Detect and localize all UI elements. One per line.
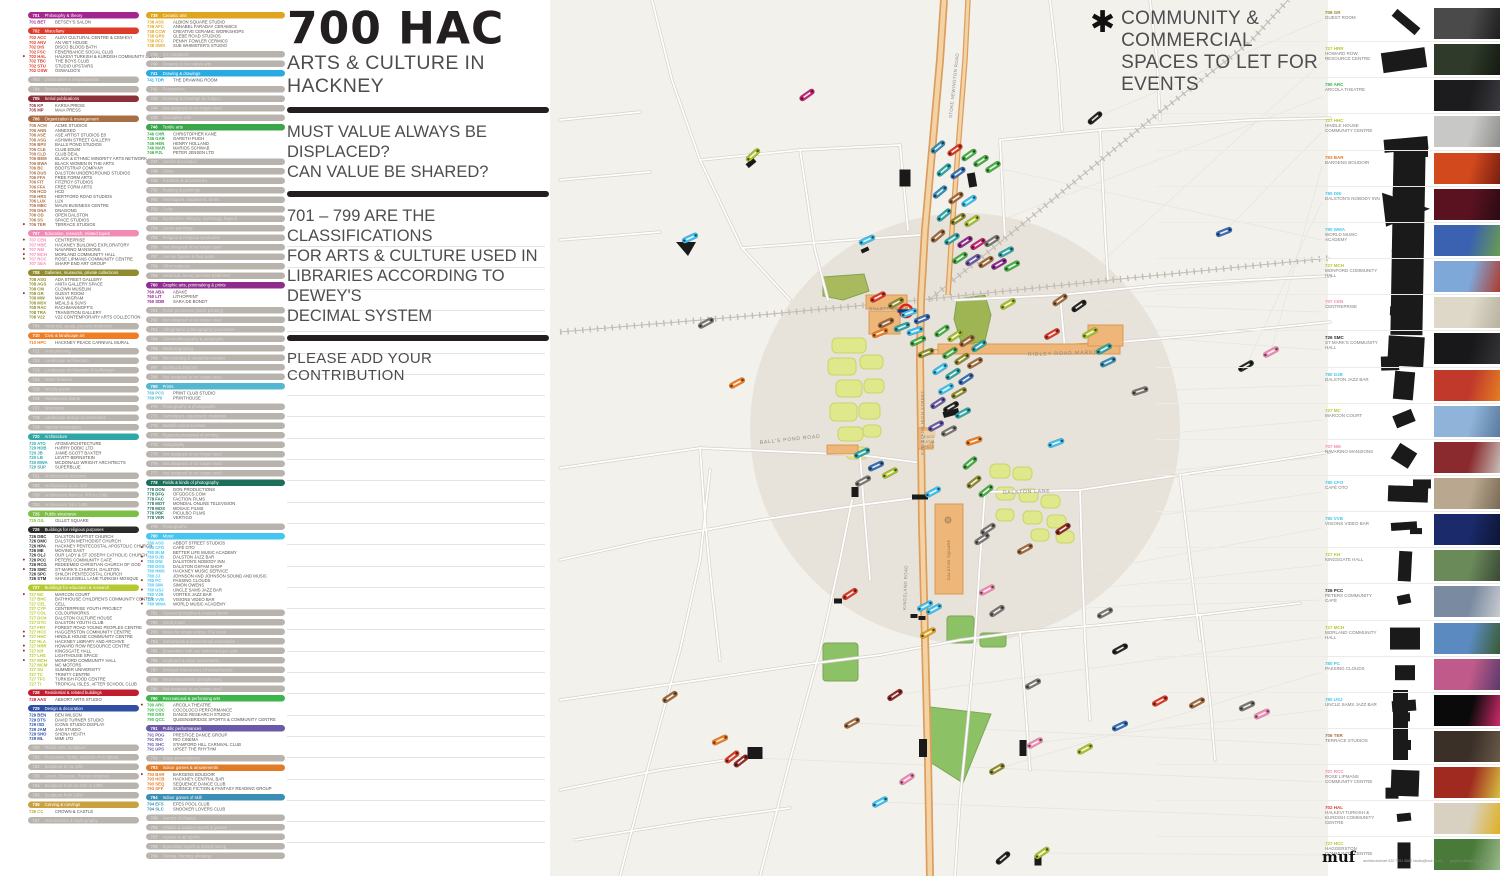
directory-column-2: 738Ceramic arts738 ASSALBION SQUARE STUD… xyxy=(146,12,285,862)
contribution-note: PLEASE ADD YOUR CONTRIBUTION xyxy=(287,350,549,384)
poster-statement: 701 – 799 ARE THE CLASSIFICATIONS FOR AR… xyxy=(287,206,549,326)
directory-section-799: 799Fishing, hunting, shooting xyxy=(146,853,285,860)
section-header: 728Residential & related buildings xyxy=(28,689,139,696)
bullet-icon: ● xyxy=(23,54,26,59)
section-header: 788Wind instruments (aerophones) xyxy=(146,676,285,683)
directory-section-754: 754Genre paintings xyxy=(146,225,285,232)
bullet-icon: ● xyxy=(23,567,26,572)
map-label: DALSTON SQUARE xyxy=(947,539,951,580)
space-code: 780 DNI xyxy=(1325,191,1380,196)
section-header: 748Glass xyxy=(146,168,285,175)
section-header: 727Buildings for education & research xyxy=(28,584,139,591)
contribution-line xyxy=(287,395,545,396)
footer-note-left: architecture/art 020 7251 5682 studio@mu… xyxy=(1363,859,1442,864)
space-name: WORLD MUSIC ACADEMY xyxy=(1325,232,1380,242)
directory-entry: 738 SWSSUE WHIMSTER'S STUDIO xyxy=(146,44,285,49)
directory-section-717: 717Structures xyxy=(28,405,139,412)
directory-section-716: 716Herbaceous plants xyxy=(28,395,139,402)
directory-section-720: 720Architecture720 ATOATOM/ARCHITECTURE7… xyxy=(28,433,139,469)
directory-section-748: 748Glass xyxy=(146,168,285,175)
directory-section-740: 740Drawing & decorative arts xyxy=(146,61,285,68)
contribution-line xyxy=(287,459,545,460)
space-row-label: 707 NMNAVARINO MANSIONS xyxy=(1325,444,1380,454)
directory-section-790: 790Recreational & performing arts●790 AR… xyxy=(146,695,285,722)
directory-section-703: 703Dictionaries & encyclopedias xyxy=(28,76,139,83)
directory-section-762: 762Not assigned or no longer used xyxy=(146,317,285,324)
directory-section-728: 728Residential & related buildings728 AA… xyxy=(28,689,139,702)
space-footprint-large xyxy=(1390,150,1425,336)
space-footprint xyxy=(1410,528,1422,534)
row-divider xyxy=(1156,403,1500,404)
bullet-icon: ● xyxy=(23,238,26,243)
section-header: 795Games of chance xyxy=(146,815,285,822)
title-block: 700 HAC ARTS & CULTURE IN HACKNEY MUST V… xyxy=(287,6,549,384)
section-header: 798Equestrian sports & animal racing xyxy=(146,843,285,850)
contribution-line xyxy=(287,523,545,524)
directory-section-718: 718Landscape design of cemeteries xyxy=(28,414,139,421)
directory-section-795: 795Games of chance xyxy=(146,815,285,822)
space-name: TERRACE STUDIOS xyxy=(1325,738,1380,743)
directory-section-742: 742Perspective xyxy=(146,86,285,93)
directory-section-778: 778Fields & kinds of photography778 DOND… xyxy=(146,479,285,520)
directory-section-777: 777Not assigned or no longer used xyxy=(146,470,285,477)
highlight-blob xyxy=(836,380,862,397)
directory-section-711: 711Area planning xyxy=(28,348,139,355)
directory-section-701: 701Philosophy & theory701 BETBETSEY'S SA… xyxy=(28,12,139,25)
directory-section-774: 774Holography xyxy=(146,441,285,448)
space-name: NAVARINO MANSIONS xyxy=(1325,449,1380,454)
space-name: DALSTON JAZZ BAR xyxy=(1325,377,1380,382)
space-name: MARCON COURT xyxy=(1325,413,1380,418)
space-name: HINDLE HOUSE COMMUNITY CENTRE xyxy=(1325,123,1380,133)
section-header: 766Mezzotinting & related processes xyxy=(146,355,285,362)
directory-section-798: 798Equestrian sports & animal racing xyxy=(146,843,285,850)
section-header: 729Design & decoration xyxy=(28,705,139,712)
directory-section-747: 747Interior decoration xyxy=(146,158,285,165)
space-footprint xyxy=(1390,628,1420,650)
row-divider xyxy=(1156,222,1500,223)
directory-section-733: 733Greek, Etruscan, Roman sculpture xyxy=(28,773,139,780)
directory-section-783: 783Music for single voices; The voice xyxy=(146,629,285,636)
space-code: 793 BAR xyxy=(1325,155,1380,160)
contribution-line xyxy=(287,842,545,843)
space-row-label: 726 SMCST MARK'S COMMUNITY HALL xyxy=(1325,335,1380,350)
space-name: ROSE LIPMANS COMMUNITY CENTRE xyxy=(1325,774,1380,784)
space-photo xyxy=(1434,333,1500,364)
directory-entry: 791 UPSUPSET THE RHYTHM xyxy=(146,747,285,752)
directory-section-746: 746Textile arts746 CHRCHRISTOPHER KANE74… xyxy=(146,124,285,156)
directory-section-794: 794Indoor games of skill794 EFSEFES POOL… xyxy=(146,794,285,811)
directory-section-725: 725Public structures725 GILGILLET SQUARE xyxy=(28,511,139,524)
directory-section-710: 710Civic & landscape art710 HPCHACKNEY P… xyxy=(28,332,139,345)
directory-entry: 794 SLCSNOOKER LOVERS CLUB xyxy=(146,807,285,812)
space-code: 780 PC xyxy=(1325,661,1380,666)
building-footprint xyxy=(834,599,842,604)
directory-section-768: 768Not assigned or no longer used xyxy=(146,374,285,381)
bullet-icon: ● xyxy=(141,587,144,592)
space-row-label: 707 RCCROSE LIPMANS COMMUNITY CENTRE xyxy=(1325,769,1380,784)
section-header: 711Area planning xyxy=(28,348,139,355)
directory-entry: 729 MLMIMI LTD xyxy=(28,737,139,742)
row-divider xyxy=(1156,583,1500,584)
space-photo xyxy=(1434,767,1500,798)
contribution-line xyxy=(287,480,545,481)
directory-section-761: 761Relief processes (block printing) xyxy=(146,307,285,314)
directory-section-745: 745Decorative arts xyxy=(146,114,285,121)
space-photo xyxy=(1434,550,1500,581)
space-row-label: 707 CENCENTREPRISE xyxy=(1325,299,1380,309)
space-row-label: 727 MCMARCON COURT xyxy=(1325,408,1380,418)
section-header: 750Painting & paintings xyxy=(146,187,285,194)
section-header: 772Metallic salt processes xyxy=(146,422,285,429)
contribution-line xyxy=(287,416,545,417)
section-header: 753Symbolism, allegory, mythology, legen… xyxy=(146,215,285,222)
highlight-blob xyxy=(864,379,884,393)
bullet-icon: ● xyxy=(23,658,26,663)
space-photo xyxy=(1434,189,1500,220)
directory-entry: 705 MPMAIA PRESS xyxy=(28,108,139,113)
directory-section-735: 735Sculpture from 1400 xyxy=(28,792,139,799)
section-header: 783Music for single voices; The voice xyxy=(146,629,285,636)
space-photo xyxy=(1434,261,1500,292)
row-divider xyxy=(1156,547,1500,548)
space-footprint-large xyxy=(1397,338,1413,350)
section-header: 738Ceramic arts xyxy=(146,12,285,19)
section-header: 763Lithographic (planographic) processes xyxy=(146,326,285,333)
directory-entry: ●780 WMAWORLD MUSIC ACADEMY xyxy=(146,602,285,607)
directory-section-712: 712Landscape architecture xyxy=(28,357,139,364)
directory-section-765: 765Metal engraving xyxy=(146,345,285,352)
directory-section-764: 764Chromolithography & serigraphy xyxy=(146,336,285,343)
directory-section-707: 707Education, research, related topics●7… xyxy=(28,230,139,266)
section-header: 745Decorative arts xyxy=(146,114,285,121)
space-row-label: 726 PCCPETERS COMMUNITY CAFÉ xyxy=(1325,588,1380,603)
directory-section-758: 758Other subjects xyxy=(146,263,285,270)
directory-section-797: 797Aquatic & air sports xyxy=(146,834,285,841)
directory-entry: 727 TITROPICAL ISLES, AFTER SCHOOL CLUB xyxy=(28,682,139,687)
space-footprint xyxy=(1392,409,1415,429)
section-header: 739Art metalwork xyxy=(146,51,285,58)
space-footprint xyxy=(1392,9,1421,35)
section-header: 714Water features xyxy=(28,376,139,383)
space-photo xyxy=(1434,659,1500,690)
space-footprint xyxy=(1381,356,1399,371)
square-icon xyxy=(945,517,951,523)
section-header: 722Architecture to ca. 300 xyxy=(28,482,139,489)
space-row-label: 790 ARCARCOLA THEATRE xyxy=(1325,82,1380,92)
section-header: 709Historical, areas, persons treatment xyxy=(28,323,139,330)
contribution-line xyxy=(287,544,545,545)
contribution-line xyxy=(287,651,545,652)
divider-bar xyxy=(287,191,549,197)
directory-section-784: 784Instruments & instrumental ensembles xyxy=(146,638,285,645)
section-header: 762Not assigned or no longer used xyxy=(146,317,285,324)
highlight-blob xyxy=(996,509,1014,521)
directory-entry: 710 HPCHACKNEY PEACE CARNIVAL MURAL xyxy=(28,340,139,345)
directory-entry: 708 V22V22 CONTEMPORARY ARTS COLLECTION xyxy=(28,315,139,320)
space-name: UNCLE SAMS JAZZ BAR xyxy=(1325,702,1380,707)
directory-section-760: 760Graphic arts, printmaking & prints760… xyxy=(146,282,285,304)
section-header: 701Philosophy & theory xyxy=(28,12,139,19)
row-divider xyxy=(1156,656,1500,657)
directory-column-1: 701Philosophy & theory701 BETBETSEY'S SA… xyxy=(28,12,139,827)
section-header: 734Sculpture from ca. 500 to 1399 xyxy=(28,782,139,789)
bullet-icon: ● xyxy=(23,222,26,227)
directory-section-734: 734Sculpture from ca. 500 to 1399 xyxy=(28,782,139,789)
directory-section-781: 781General principles & musical forms xyxy=(146,610,285,617)
row-divider xyxy=(1156,511,1500,512)
section-header: 757Human figures & their parts xyxy=(146,253,285,260)
section-header: 719Natural landscapes xyxy=(28,424,139,431)
row-divider xyxy=(1156,258,1500,259)
bullet-icon: ● xyxy=(141,602,144,607)
section-header: 733Greek, Etruscan, Roman sculpture xyxy=(28,773,139,780)
space-name: ST MARK'S COMMUNITY HALL xyxy=(1325,340,1380,350)
section-header: 732Sculpture to ca. 500 xyxy=(28,763,139,770)
space-photo xyxy=(1434,297,1500,328)
space-footprint xyxy=(1397,594,1412,606)
directory-section-729: 729Design & decoration729 BENBEN WILSON7… xyxy=(28,705,139,741)
space-photo xyxy=(1434,803,1500,834)
space-name: PETERS COMMUNITY CAFÉ xyxy=(1325,593,1380,603)
section-header: 764Chromolithography & serigraphy xyxy=(146,336,285,343)
directory-section-737: 737Numismatics & sigillography xyxy=(28,817,139,824)
section-header: 726Buildings for religious purposes xyxy=(28,526,139,533)
space-code: 727 MC xyxy=(1325,408,1380,413)
space-footprint xyxy=(1381,47,1427,73)
directory-section-776: 776Not assigned or no longer used xyxy=(146,460,285,467)
directory-section-767: 767Etching & drypoint xyxy=(146,364,285,371)
poster-question: MUST VALUE ALWAYS BE DISPLACED? CAN VALU… xyxy=(287,122,549,182)
directory-section-753: 753Symbolism, allegory, mythology, legen… xyxy=(146,215,285,222)
space-photo xyxy=(1434,116,1500,147)
directory-section-738: 738Ceramic arts738 ASSALBION SQUARE STUD… xyxy=(146,12,285,48)
section-header: 792Stage presentations xyxy=(146,755,285,762)
directory-entry: 725 GILGILLET SQUARE xyxy=(28,519,139,524)
section-header: 724Architecture from 1400 xyxy=(28,501,139,508)
section-header: 786Keyboard & other instruments xyxy=(146,657,285,664)
spaces-header: ✱ COMMUNITY & COMMERCIAL SPACES TO LET F… xyxy=(1090,8,1340,96)
building-footprint xyxy=(919,616,926,620)
directory-section-773: 773Pigment processes of printing xyxy=(146,432,285,439)
directory-section-706: 706Organization & management706 ACMACME … xyxy=(28,116,139,227)
space-row-label: 780 WMAWORLD MUSIC ACADEMY xyxy=(1325,227,1380,242)
space-photo xyxy=(1434,623,1500,654)
highlight-blob xyxy=(990,464,1010,478)
bullet-icon: ● xyxy=(23,257,26,262)
space-photo xyxy=(1434,514,1500,545)
map-label: MURAL xyxy=(921,440,936,444)
row-divider xyxy=(1156,367,1500,368)
row-divider xyxy=(1156,800,1500,801)
space-photo xyxy=(1434,586,1500,617)
section-header: 796Athletic & outdoor sports & games xyxy=(146,824,285,831)
directory-section-705: 705Serial publications705 KPKARSA PRESS7… xyxy=(28,95,139,112)
space-photo xyxy=(1434,8,1500,39)
directory-section-757: 757Human figures & their parts xyxy=(146,253,285,260)
space-row-label: 780 VVBVISIONS VIDEO BAR xyxy=(1325,516,1380,526)
section-header: 761Relief processes (block printing) xyxy=(146,307,285,314)
directory-section-792: 792Stage presentations xyxy=(146,755,285,762)
building-footprint xyxy=(852,487,859,497)
section-header: 754Genre paintings xyxy=(146,225,285,232)
space-row-label: 727 KHKINGSGATE HALL xyxy=(1325,552,1380,562)
section-header: 730Plastic arts; Sculpture xyxy=(28,744,139,751)
section-header: 704Special topics xyxy=(28,86,139,93)
highlight-blob xyxy=(1013,467,1032,480)
directory-entry: 769 PRIPRINTHOUSE xyxy=(146,396,285,401)
directory-section-766: 766Mezzotinting & related processes xyxy=(146,355,285,362)
directory-section-759: 759Historical, areas, persons treatment xyxy=(146,272,285,279)
section-header: 747Interior decoration xyxy=(146,158,285,165)
bullet-icon: ● xyxy=(141,559,144,564)
section-header: 759Historical, areas, persons treatment xyxy=(146,272,285,279)
spaces-header-text: COMMUNITY & COMMERCIAL SPACES TO LET FOR… xyxy=(1121,8,1340,96)
contribution-line xyxy=(287,800,545,801)
directory-section-723: 723Architecture from ca. 300 to 1399 xyxy=(28,492,139,499)
space-photo xyxy=(1434,406,1500,437)
section-header: 779Photographs xyxy=(146,523,285,530)
directory-section-769: 769Prints769 PCSPRINT CLUB STUDIO769 PRI… xyxy=(146,383,285,400)
bullet-icon: ● xyxy=(23,648,26,653)
divider-bar xyxy=(287,335,549,341)
section-header: 749Furniture & accessories xyxy=(146,177,285,184)
building-footprint xyxy=(748,747,763,759)
directory-section-704: 704Special topics xyxy=(28,86,139,93)
space-name: CAFÉ OTO xyxy=(1325,485,1380,490)
section-header: 718Landscape design of cemeteries xyxy=(28,414,139,421)
section-header: 791Public performances xyxy=(146,725,285,732)
space-row-label: 780 CFOCAFÉ OTO xyxy=(1325,480,1380,490)
section-header: 731Processes, forms, subjects of sculptu… xyxy=(28,754,139,761)
contribution-line xyxy=(287,736,545,737)
section-header: 789Not assigned or no longer used xyxy=(146,686,285,693)
directory-section-708: 708Galleries, museums, private collectio… xyxy=(28,269,139,319)
space-name: HOWARD ROW RESOURCE CENTRE xyxy=(1325,51,1380,61)
section-header: 799Fishing, hunting, shooting xyxy=(146,853,285,860)
directory-section-726: 726Buildings for religious purposes726 D… xyxy=(28,526,139,581)
directory-section-719: 719Natural landscapes xyxy=(28,424,139,431)
section-header: 721Architectural structure xyxy=(28,473,139,480)
highlight-blob xyxy=(863,425,881,437)
directory-section-772: 772Metallic salt processes xyxy=(146,422,285,429)
footer: muf architecture/art 020 7251 5682 studi… xyxy=(1322,850,1500,864)
section-header: 768Not assigned or no longer used xyxy=(146,374,285,381)
row-divider xyxy=(1156,836,1500,837)
directory-entry: 746 PJLPETER JENSEN LTD xyxy=(146,151,285,156)
space-photo xyxy=(1434,153,1500,184)
directory-section-780: 780Music780 ASSABBOT STREET STUDIOS●780 … xyxy=(146,533,285,607)
contribution-line xyxy=(287,715,545,716)
bullet-icon: ● xyxy=(141,772,144,777)
poster-logo: 700 HAC xyxy=(287,6,549,53)
space-photo xyxy=(1434,370,1500,401)
highlight-blob xyxy=(1023,511,1042,524)
space-name: VISIONS VIDEO BAR xyxy=(1325,521,1380,526)
section-header: 781General principles & musical forms xyxy=(146,610,285,617)
bullet-icon: ● xyxy=(23,291,26,296)
space-photo xyxy=(1434,731,1500,762)
highlight-blob xyxy=(859,403,880,419)
directory-section-793: 793Indoor games & amusements●793 BARBARG… xyxy=(146,764,285,791)
section-header: 717Structures xyxy=(28,405,139,412)
directory-section-736: 736Carving & carvings736 CCCROWN & CASTL… xyxy=(28,801,139,814)
row-divider xyxy=(1156,294,1500,295)
space-photo xyxy=(1434,225,1500,256)
section-header: 735Sculpture from 1400 xyxy=(28,792,139,799)
directory-entry: 778 VERVERTIGO xyxy=(146,516,285,521)
directory-section-709: 709Historical, areas, persons treatment xyxy=(28,323,139,330)
poster-subtitle: ARTS & CULTURE IN HACKNEY xyxy=(287,52,549,98)
section-header: 777Not assigned or no longer used xyxy=(146,470,285,477)
directory-entry: 736 CCCROWN & CASTLE xyxy=(28,809,139,814)
section-header: 741Drawing & drawings xyxy=(146,70,285,77)
space-footprint xyxy=(1386,788,1399,799)
section-header: 765Metal engraving xyxy=(146,345,285,352)
directory-section-731: 731Processes, forms, subjects of sculptu… xyxy=(28,754,139,761)
section-header: 725Public structures xyxy=(28,511,139,518)
section-header: 785Ensembles with one instrument per par… xyxy=(146,648,285,655)
section-header: 787Stringed instruments (chordophones) xyxy=(146,667,285,674)
focus-circle xyxy=(750,213,1180,643)
directory-section-752: 752Color xyxy=(146,206,285,213)
section-header: 774Holography xyxy=(146,441,285,448)
directory-entry: 741 TDRTHE DRAWING ROOM xyxy=(146,78,285,83)
directory-entry: ●706 TERTERRACE STUDIOS xyxy=(28,223,139,228)
row-divider xyxy=(1156,113,1500,114)
section-header: 760Graphic arts, printmaking & prints xyxy=(146,282,285,289)
section-header: 743Drawing & drawings by subject xyxy=(146,95,285,102)
contribution-line xyxy=(287,608,545,609)
section-header: 794Indoor games of skill xyxy=(146,794,285,801)
highlight-blob xyxy=(1031,529,1049,541)
directory-section-751: 751Techniques, equipment, forms xyxy=(146,196,285,203)
footer-note-right: graphic design by åbäke xyxy=(1450,859,1489,864)
contribution-line xyxy=(287,779,545,780)
section-header: 773Pigment processes of printing xyxy=(146,432,285,439)
building-footprint xyxy=(900,170,911,187)
section-header: 784Instruments & instrumental ensembles xyxy=(146,638,285,645)
space-footprint xyxy=(1413,479,1431,488)
directory-section-721: 721Architectural structure xyxy=(28,473,139,480)
directory-entry: 720 SUPSUPERBLUE xyxy=(28,465,139,470)
directory-section-741: 741Drawing & drawings741 TDRTHE DRAWING … xyxy=(146,70,285,83)
directory-entry: 701 BETBETSEY'S SALON xyxy=(28,20,139,25)
directory-section-713: 713Landscape architecture of trafficways xyxy=(28,367,139,374)
space-name: KINGSGATE HALL xyxy=(1325,557,1380,562)
section-header: 756Not assigned or no longer used xyxy=(146,244,285,251)
section-header: 740Drawing & decorative arts xyxy=(146,61,285,68)
space-photo xyxy=(1434,695,1500,726)
section-header: 707Education, research, related topics xyxy=(28,230,139,237)
section-header: 755Religion & religious symbolism xyxy=(146,234,285,241)
space-name: GUEST ROOM xyxy=(1325,15,1380,20)
directory-section-702: 702Miscellany702 ACCALEVI CULTURAL CENTR… xyxy=(28,28,139,74)
directory-section-732: 732Sculpture to ca. 500 xyxy=(28,763,139,770)
contribution-line xyxy=(287,821,545,822)
directory-section-789: 789Not assigned or no longer used xyxy=(146,686,285,693)
section-header: 703Dictionaries & encyclopedias xyxy=(28,76,139,83)
highlight-blob xyxy=(828,358,856,375)
directory-section-739: 739Art metalwork xyxy=(146,51,285,58)
directory-section-730: 730Plastic arts; Sculpture xyxy=(28,744,139,751)
contribution-line xyxy=(287,672,545,673)
bullet-icon: ● xyxy=(23,634,26,639)
highlight-blob xyxy=(860,355,883,369)
space-name: HALKEVI TURKISH & KURDISH COMMUNITY CENT… xyxy=(1325,810,1380,825)
section-header: 744Not assigned or no longer used xyxy=(146,105,285,112)
space-row-label: 780 DNIDALSTON'S NOBODY INN xyxy=(1325,191,1380,201)
